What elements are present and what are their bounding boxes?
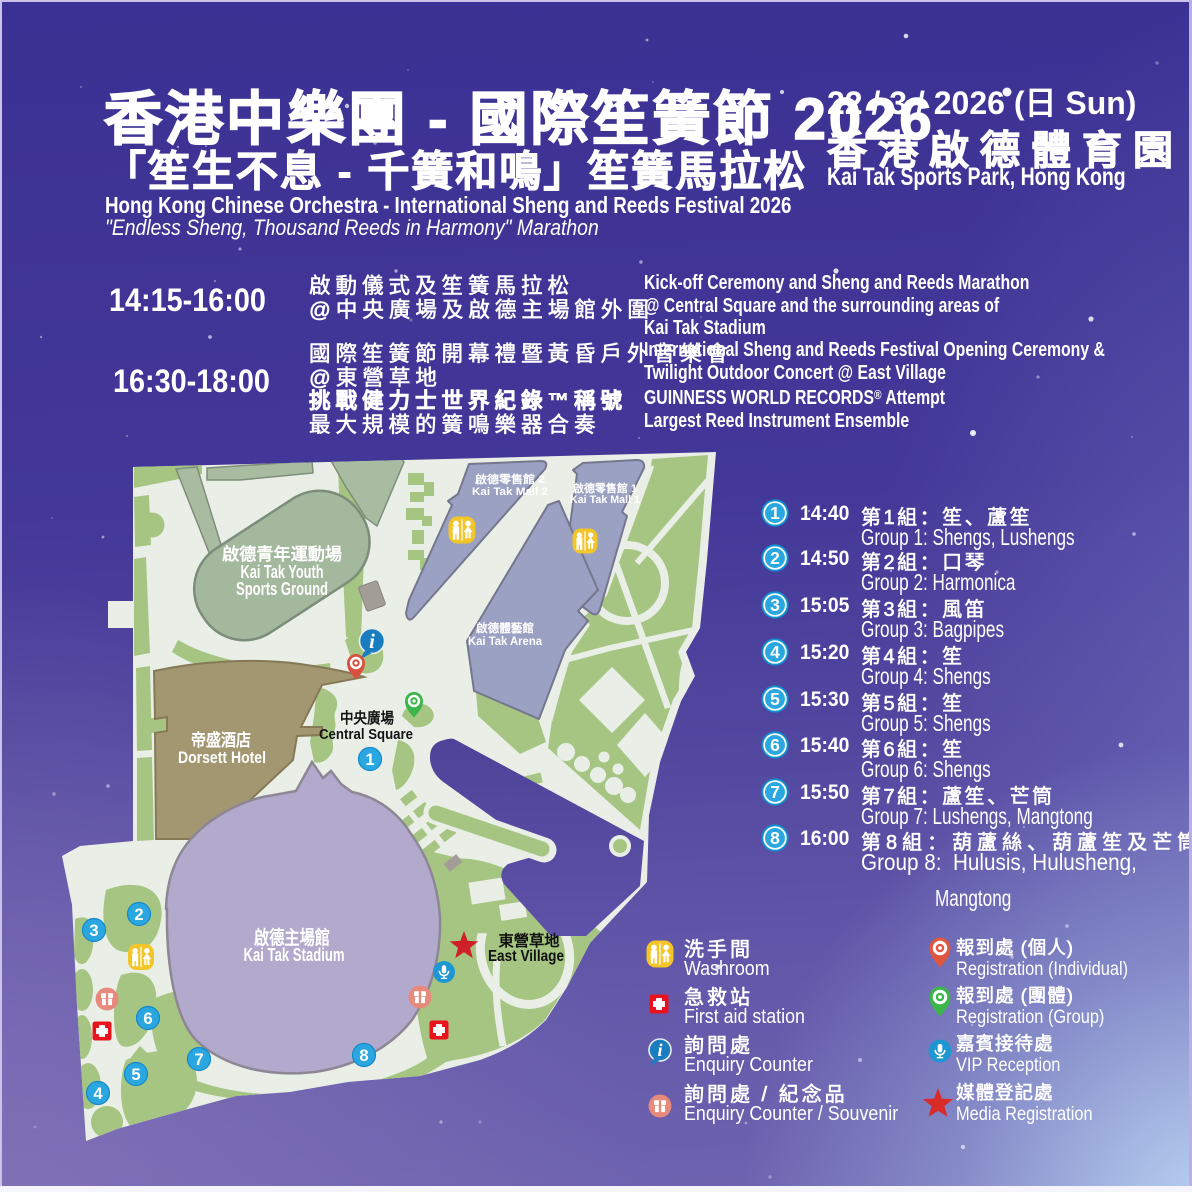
svg-text:Kai Tak Mall 1: Kai Tak Mall 1 — [570, 494, 640, 506]
svg-text:4: 4 — [770, 642, 780, 662]
svg-text:3: 3 — [770, 595, 780, 615]
svg-text:5: 5 — [131, 1065, 140, 1084]
svg-text:7: 7 — [194, 1050, 203, 1069]
svg-text:Dorsett Hotel: Dorsett Hotel — [178, 748, 266, 767]
svg-text:1: 1 — [365, 750, 374, 769]
svg-text:2: 2 — [134, 905, 143, 924]
svg-text:8: 8 — [770, 828, 780, 848]
svg-text:啟德體藝館: 啟德體藝館 — [476, 621, 534, 635]
svg-text:i: i — [657, 1040, 662, 1060]
svg-text:Kai Tak Arena: Kai Tak Arena — [468, 634, 542, 648]
svg-text:Central Square: Central Square — [319, 727, 413, 743]
svg-text:6: 6 — [143, 1009, 152, 1028]
svg-text:3: 3 — [89, 921, 98, 940]
svg-text:7: 7 — [770, 782, 780, 802]
svg-text:4: 4 — [93, 1084, 103, 1103]
svg-text:Sports Ground: Sports Ground — [236, 579, 328, 599]
svg-text:Kai Tak Stadium: Kai Tak Stadium — [244, 945, 345, 965]
svg-text:Kai Tak Mall 2: Kai Tak Mall 2 — [472, 486, 548, 498]
svg-text:6: 6 — [770, 735, 780, 755]
svg-text:i: i — [369, 631, 375, 653]
svg-text:啟德零售館 1: 啟德零售館 1 — [573, 481, 637, 495]
svg-text:East Village: East Village — [488, 948, 564, 965]
svg-text:中央廣場: 中央廣場 — [340, 709, 394, 727]
svg-text:帝盛酒店: 帝盛酒店 — [191, 730, 251, 750]
svg-text:啟德零售館 2: 啟德零售館 2 — [475, 472, 545, 486]
svg-text:8: 8 — [359, 1046, 368, 1065]
svg-text:1: 1 — [770, 503, 780, 523]
svg-text:2: 2 — [770, 548, 780, 568]
svg-text:5: 5 — [770, 689, 780, 709]
svg-text:啟德青年運動場: 啟德青年運動場 — [222, 544, 342, 564]
